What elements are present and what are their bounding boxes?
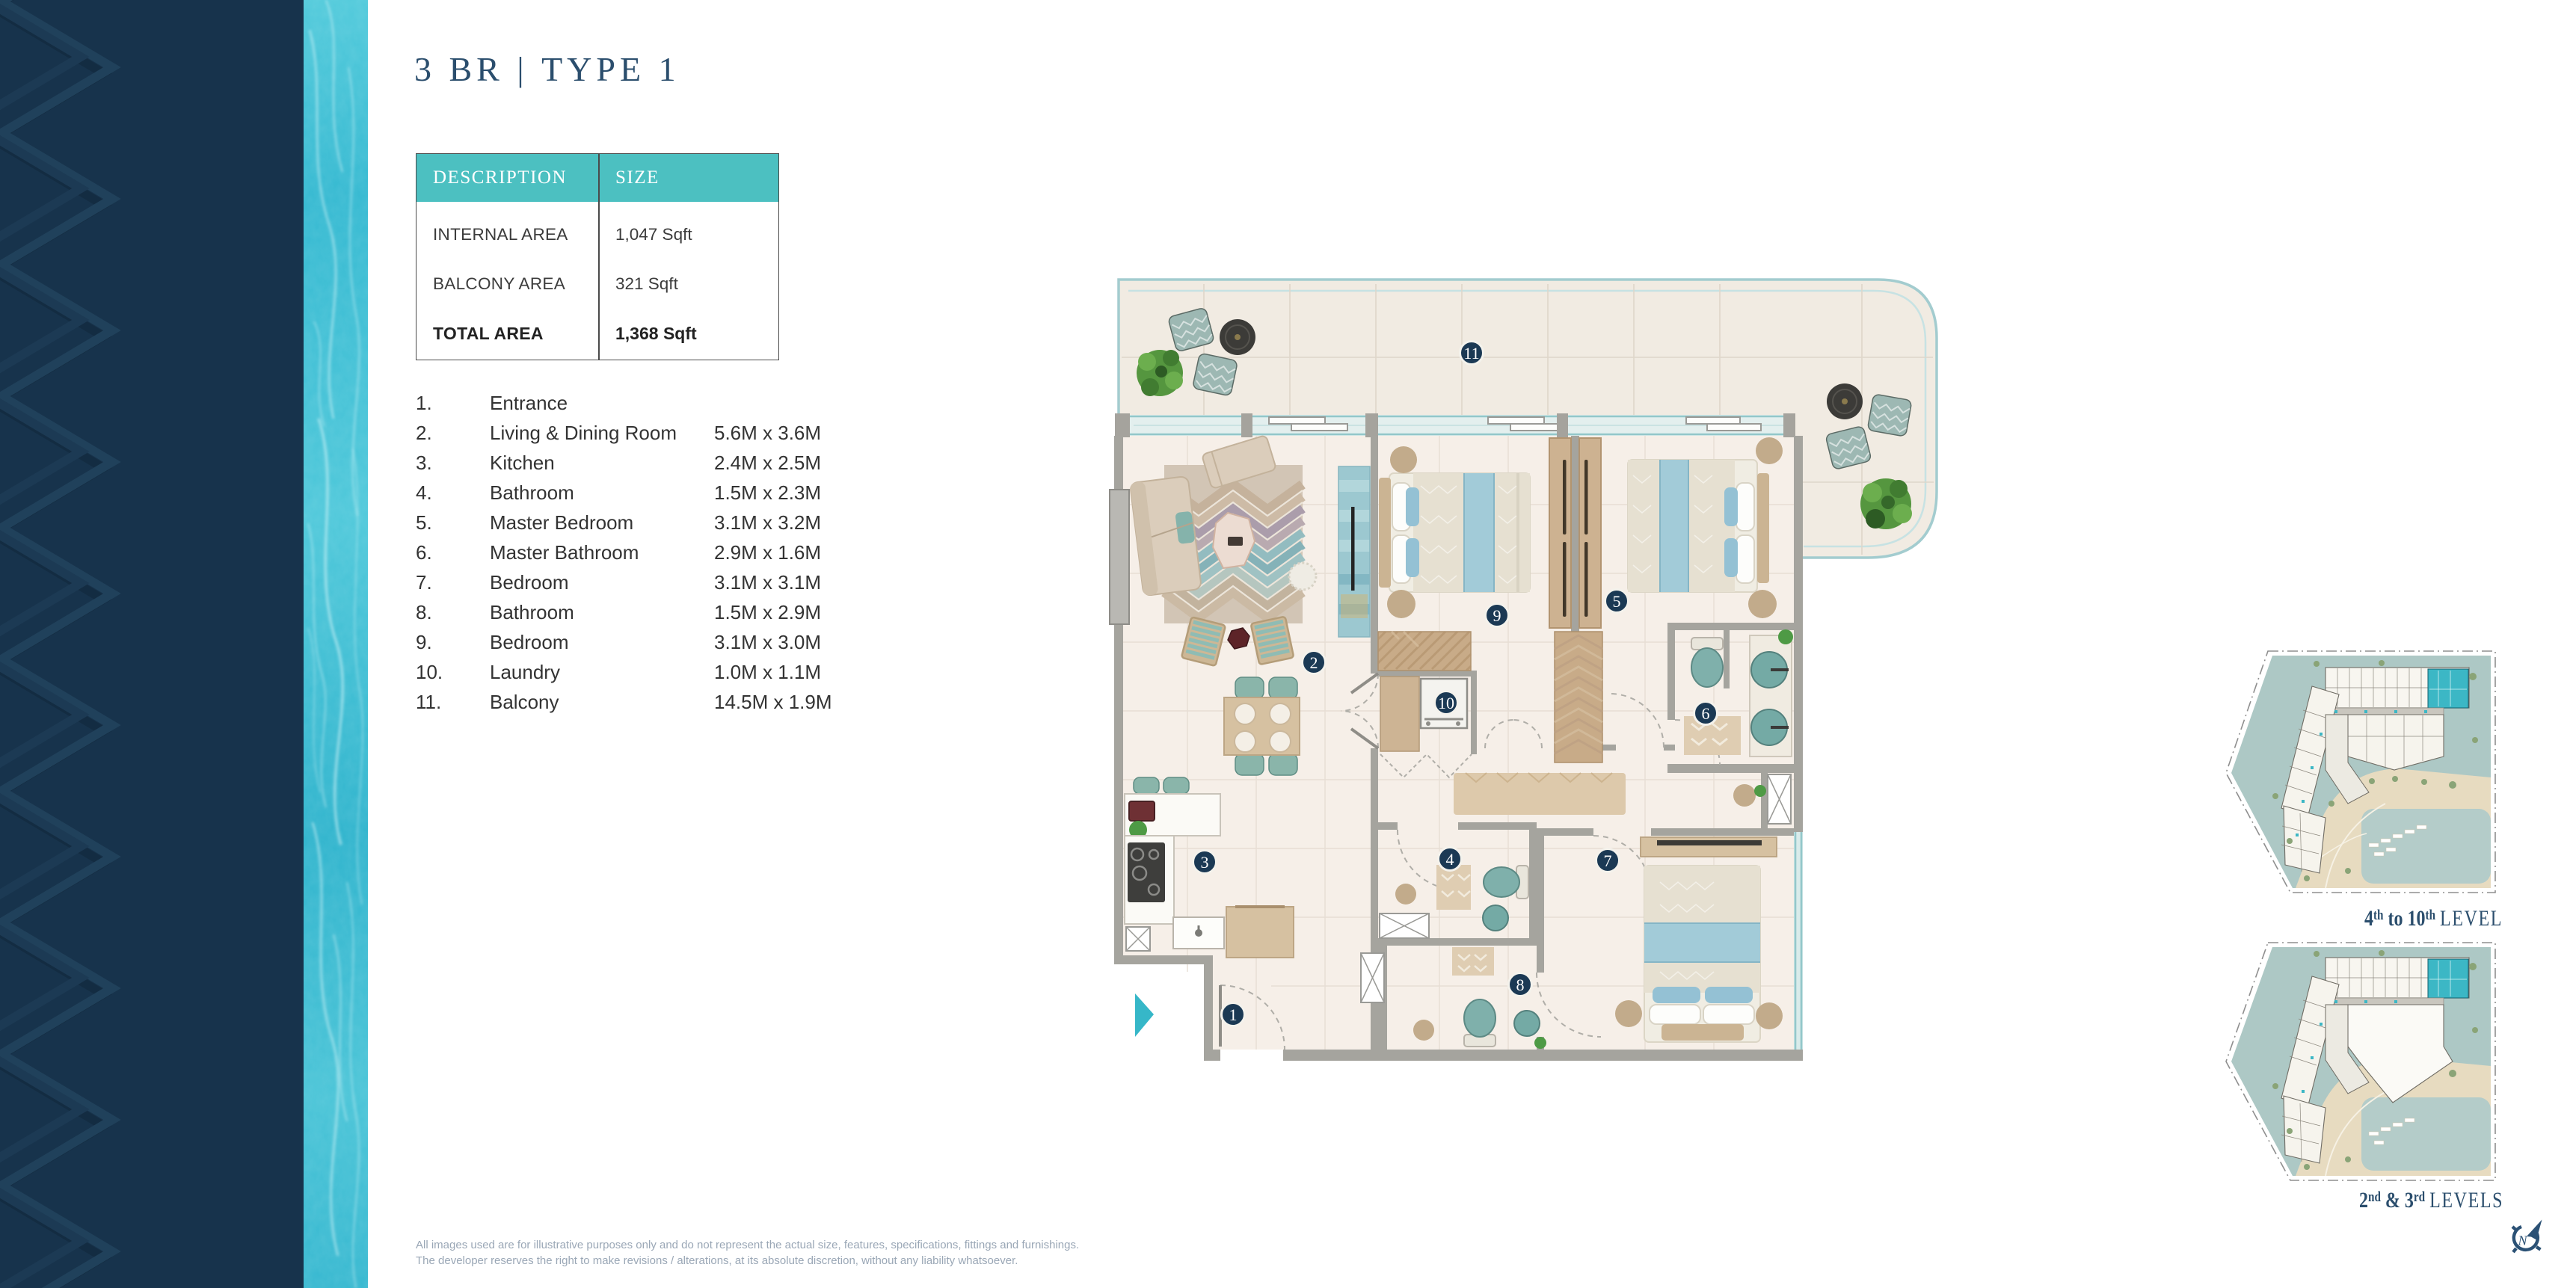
svg-text:4: 4: [1446, 850, 1454, 869]
svg-text:3: 3: [1201, 853, 1209, 872]
svg-text:N: N: [2518, 1233, 2528, 1248]
svg-text:9: 9: [1493, 606, 1501, 625]
svg-text:7: 7: [1604, 851, 1612, 870]
svg-text:10: 10: [1438, 694, 1454, 712]
svg-text:2: 2: [1310, 653, 1318, 672]
svg-text:5: 5: [1613, 592, 1621, 611]
svg-text:8: 8: [1516, 976, 1525, 994]
svg-text:6: 6: [1702, 704, 1710, 723]
svg-text:11: 11: [1463, 344, 1479, 363]
svg-text:1: 1: [1229, 1005, 1238, 1024]
